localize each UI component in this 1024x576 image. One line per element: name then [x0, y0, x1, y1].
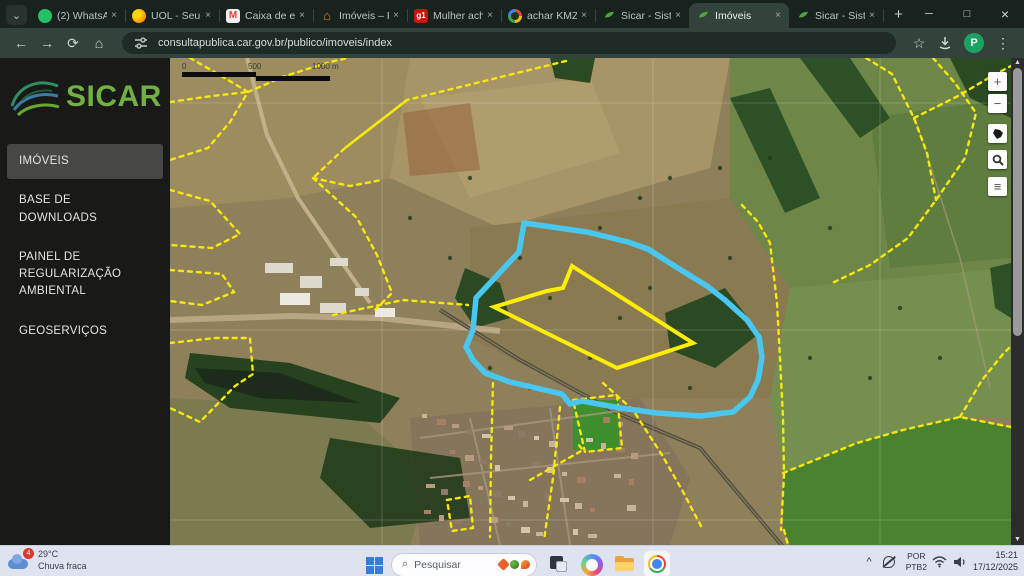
tab-imoveis-active[interactable]: Imóveis ×	[689, 3, 789, 28]
map-search-button[interactable]	[988, 150, 1007, 169]
sicar-logo: SICAR	[0, 58, 170, 130]
minimize-button[interactable]: ─	[910, 0, 948, 28]
forward-button[interactable]: →	[34, 30, 60, 56]
brazil-shape-icon	[992, 128, 1004, 140]
tab-whatsapp[interactable]: (2) WhatsApp ×	[31, 3, 125, 28]
sicar-sidebar: SICAR IMÓVEIS BASE DE DOWNLOADS PAINEL D…	[0, 58, 170, 545]
notification-badge: 4	[23, 548, 34, 559]
map-scale-bar: 0 500 1000 m	[182, 62, 342, 71]
sidebar-item-imoveis[interactable]: IMÓVEIS	[7, 144, 163, 179]
reload-button[interactable]: ⟳	[60, 30, 86, 56]
search-placeholder: Pesquisar	[414, 559, 497, 571]
close-button[interactable]: ×	[986, 0, 1024, 28]
task-view-button[interactable]	[548, 554, 570, 576]
search-icon: ⌕	[402, 558, 408, 571]
scroll-up-arrow[interactable]: ▲	[1011, 58, 1024, 68]
tab-close-icon[interactable]: ×	[201, 9, 215, 23]
tab-close-icon[interactable]: ×	[483, 9, 497, 23]
tab-close-icon[interactable]: ×	[671, 9, 685, 23]
satellite-map	[170, 58, 1011, 545]
tab-google-search[interactable]: achar KMZ c ×	[501, 3, 595, 28]
site-settings-icon[interactable]	[134, 36, 148, 50]
sicar-leaf-icon	[796, 9, 810, 23]
copilot-button[interactable]	[581, 554, 603, 576]
brazil-extent-button[interactable]	[988, 124, 1007, 143]
chrome-icon	[648, 555, 666, 573]
sicar-logo-text: SICAR	[66, 80, 162, 114]
tab-imoveis-pa[interactable]: ⌂ Imóveis – PA ×	[313, 3, 407, 28]
browser-window: ⌄ (2) WhatsApp × UOL - Seu un × M Caixa …	[0, 0, 1024, 576]
sicar-leaf-icon	[696, 9, 710, 23]
house-icon: ⌂	[320, 9, 334, 23]
tab-bar: ⌄ (2) WhatsApp × UOL - Seu un × M Caixa …	[0, 0, 1024, 28]
browser-menu-icon[interactable]: ⋮	[990, 30, 1016, 56]
scroll-down-arrow[interactable]: ▼	[1011, 535, 1024, 545]
muted-status-icon[interactable]	[882, 555, 896, 569]
volume-icon[interactable]	[953, 556, 967, 568]
map-canvas[interactable]: 0 500 1000 m + −	[170, 58, 1011, 545]
clock[interactable]: 15:21 17/12/2025	[973, 550, 1018, 573]
tray-date: 17/12/2025	[973, 562, 1018, 574]
ornament-icon	[497, 558, 510, 571]
sicar-logo-icon	[8, 74, 62, 120]
wifi-icon[interactable]	[932, 556, 947, 568]
tray-time: 15:21	[973, 550, 1018, 562]
browser-toolbar: ← → ⟳ ⌂ consultapublica.car.gov.br/publi…	[0, 28, 1024, 58]
new-tab-button[interactable]: +	[887, 2, 910, 26]
g1-icon: g1	[414, 9, 428, 23]
ornament-icon	[521, 560, 530, 569]
tab-uol[interactable]: UOL - Seu un ×	[125, 3, 219, 28]
url-text: consultapublica.car.gov.br/publico/imove…	[158, 37, 392, 49]
zoom-in-button[interactable]: +	[988, 72, 1007, 91]
taskbar-search[interactable]: ⌕ Pesquisar	[391, 553, 537, 576]
home-button[interactable]: ⌂	[86, 30, 112, 56]
windows-taskbar: 4 29°C Chuva fraca ⌕ Pesquisar	[0, 545, 1024, 576]
tab-close-icon[interactable]: ×	[577, 9, 591, 23]
weather-icon: 4	[8, 549, 32, 571]
tab-close-icon[interactable]: ×	[107, 9, 121, 23]
chrome-taskbar-button[interactable]	[644, 551, 670, 576]
system-tray: ^ POR PTB2 15:21 17/12/2025	[862, 546, 1018, 576]
back-button[interactable]: ←	[8, 30, 34, 56]
scrollbar-thumb[interactable]	[1013, 68, 1022, 336]
tab-gmail[interactable]: M Caixa de entr ×	[219, 3, 313, 28]
address-bar[interactable]: consultapublica.car.gov.br/publico/imove…	[122, 32, 896, 54]
sidebar-item-base-de-downloads[interactable]: BASE DE DOWNLOADS	[7, 183, 163, 236]
gmail-icon: M	[226, 9, 240, 23]
google-icon	[508, 9, 522, 23]
tray-chevron-icon[interactable]: ^	[867, 556, 872, 568]
tab-close-icon[interactable]: ×	[771, 9, 785, 23]
zoom-out-button[interactable]: −	[988, 94, 1007, 113]
vertical-scrollbar[interactable]: ▲ ▼	[1011, 58, 1024, 545]
tab-sicar-1[interactable]: Sicar - Sistem ×	[595, 3, 689, 28]
tab-search-button[interactable]: ⌄	[6, 5, 27, 25]
layers-button[interactable]: ≡	[988, 177, 1007, 196]
search-icon	[992, 154, 1004, 166]
ornament-icon	[510, 560, 519, 569]
maximize-button[interactable]: □	[948, 0, 986, 28]
sidebar-menu: IMÓVEIS BASE DE DOWNLOADS PAINEL DE REGU…	[0, 144, 170, 349]
bookmark-star-icon[interactable]: ☆	[906, 30, 932, 56]
language-indicator[interactable]: POR PTB2	[906, 551, 927, 572]
tab-close-icon[interactable]: ×	[295, 9, 309, 23]
tab-close-icon[interactable]: ×	[389, 9, 403, 23]
tab-sicar-2[interactable]: Sicar - Sistem ×	[789, 3, 883, 28]
file-explorer-button[interactable]	[614, 554, 636, 576]
weather-widget[interactable]: 4 29°C Chuva fraca	[8, 548, 87, 572]
profile-avatar[interactable]: P	[964, 33, 984, 53]
uol-icon	[132, 9, 146, 23]
tab-close-icon[interactable]: ×	[865, 9, 879, 23]
weather-temperature: 29°C	[38, 548, 87, 560]
whatsapp-icon	[38, 9, 52, 23]
sicar-leaf-icon	[602, 9, 616, 23]
weather-condition: Chuva fraca	[38, 560, 87, 572]
sidebar-item-painel-regularizacao[interactable]: PAINEL DE REGULARIZAÇÃO AMBIENTAL	[7, 240, 157, 310]
window-controls: ─ □ ×	[910, 0, 1024, 28]
tab-g1[interactable]: g1 Mulher acha ×	[407, 3, 501, 28]
downloads-icon[interactable]	[932, 30, 958, 56]
start-button[interactable]	[366, 557, 383, 574]
sidebar-item-geoservicos[interactable]: GEOSERVIÇOS	[7, 314, 163, 349]
